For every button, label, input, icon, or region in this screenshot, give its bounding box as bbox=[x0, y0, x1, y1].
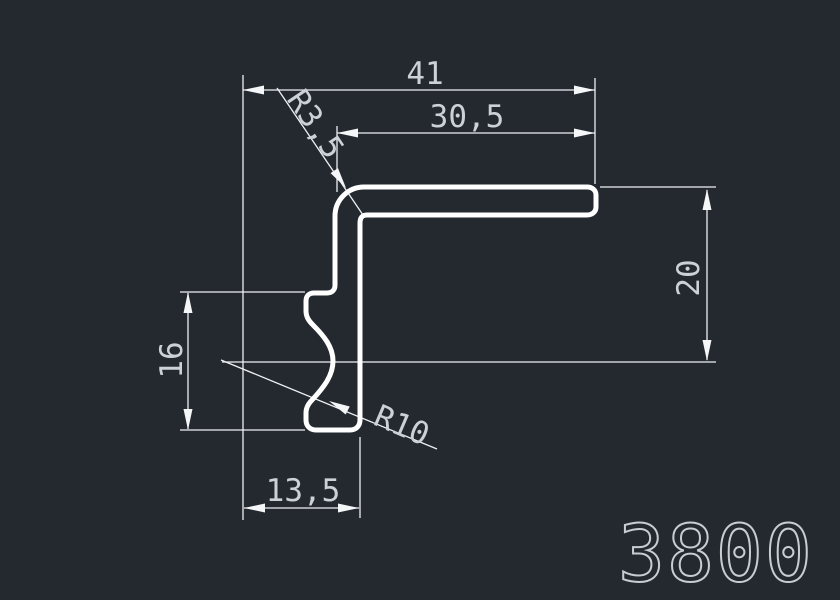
dim-label-right-height: 20 bbox=[671, 259, 707, 296]
arrow-41-right bbox=[574, 86, 595, 95]
cad-drawing-canvas: 41 30,5 R3,5 20 16 13,5 R10 3800 bbox=[0, 0, 840, 600]
dim-label-overall-width: 41 bbox=[406, 56, 443, 92]
arrow-16-top bbox=[184, 292, 193, 313]
arrow-305-right bbox=[574, 129, 595, 138]
arrow-135-right bbox=[338, 504, 359, 513]
dim-label-groove-radius: R10 bbox=[369, 398, 435, 453]
dim-label-left-height: 16 bbox=[154, 341, 190, 378]
arrow-20-top bbox=[703, 189, 712, 210]
dimension-lines bbox=[180, 75, 716, 520]
arrow-16-bottom bbox=[184, 409, 193, 430]
dim-label-corner-radius: R3,5 bbox=[279, 83, 351, 165]
dimension-labels: 41 30,5 R3,5 20 16 13,5 R10 bbox=[154, 56, 707, 509]
arrow-135-left bbox=[244, 504, 265, 513]
arrow-r35 bbox=[331, 168, 350, 190]
profile-outline bbox=[306, 187, 596, 430]
dimension-arrowheads bbox=[184, 86, 712, 513]
arrow-41-left bbox=[243, 86, 264, 95]
dim-label-bottom-width: 13,5 bbox=[266, 473, 341, 509]
arrow-20-bottom bbox=[703, 340, 712, 361]
cad-drawing-viewport: 41 30,5 R3,5 20 16 13,5 R10 3800 bbox=[0, 0, 840, 600]
dim-label-top-width: 30,5 bbox=[430, 99, 505, 135]
part-number-text: 3800 bbox=[618, 510, 814, 600]
